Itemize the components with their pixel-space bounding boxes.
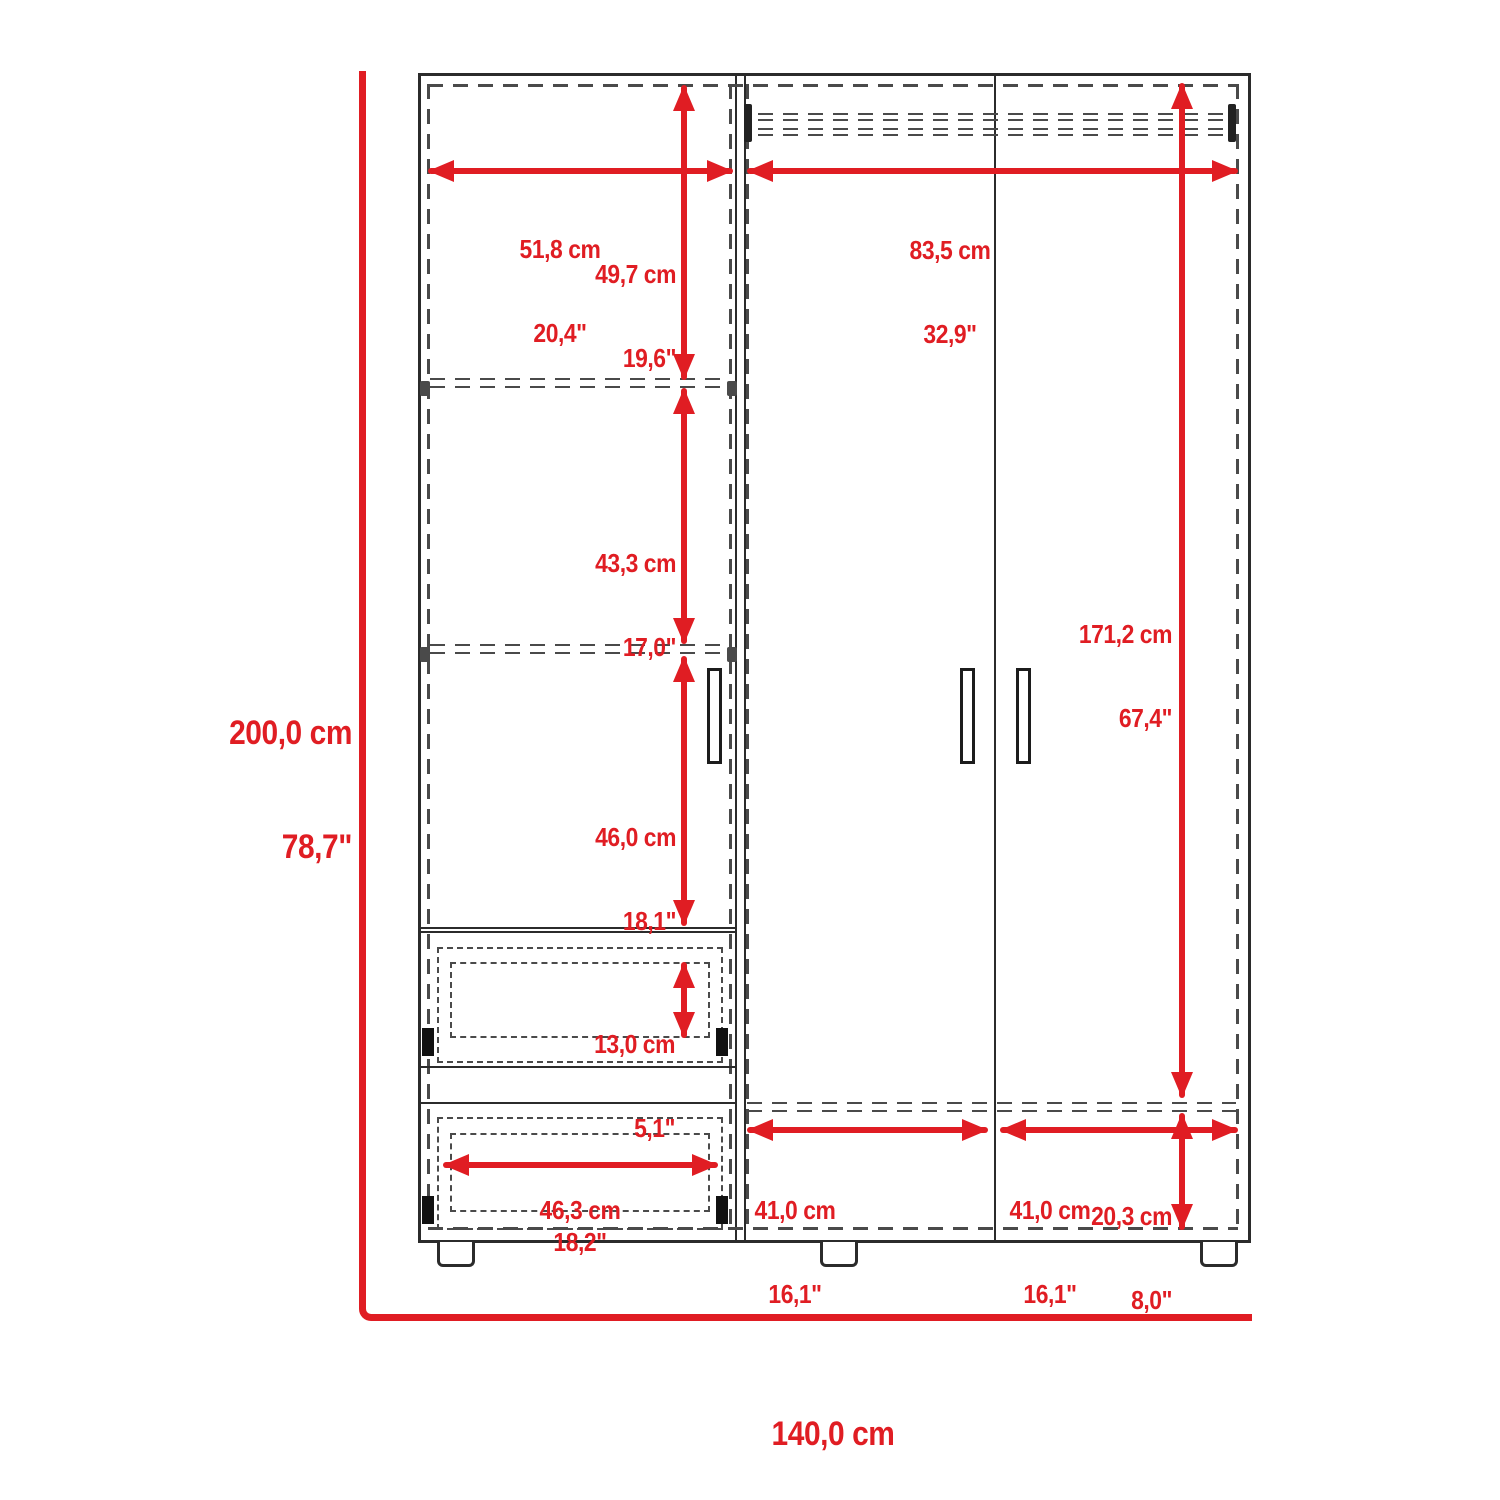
arrowhead	[673, 85, 695, 111]
arrowhead	[673, 354, 695, 380]
label-overall-width-cm: 140,0 cm	[701, 1415, 965, 1453]
dim-line-left-opening-width	[428, 168, 733, 174]
dim-line-right-door-width	[1000, 1127, 1238, 1133]
arrowhead	[1212, 1119, 1238, 1141]
label-cm: 20,3 cm	[1015, 1202, 1172, 1230]
arrowhead	[673, 900, 695, 926]
dim-line-hanging-area-height	[1179, 83, 1185, 1098]
arrowhead	[1171, 1113, 1193, 1139]
label-cm: 43,3 cm	[502, 549, 676, 577]
arrowhead	[428, 160, 454, 182]
label-in: 16,1"	[707, 1280, 883, 1308]
arrowhead	[673, 1012, 695, 1038]
label-base-shelf-height: 20,3 cm 8,0"	[1015, 1146, 1172, 1370]
arrowhead	[673, 388, 695, 414]
arrowhead	[1171, 1204, 1193, 1230]
label-cm: 171,2 cm	[996, 620, 1172, 648]
dim-line-left-door-width	[747, 1127, 988, 1133]
label-lower-left-height: 46,0 cm 18,1"	[502, 767, 676, 991]
label-in: 19,6"	[502, 344, 676, 372]
label-overall-height: 200,0 cm 78,7"	[165, 638, 352, 942]
label-middle-shelf-height: 43,3 cm 17,0"	[502, 493, 676, 717]
label-in: 8,0"	[1015, 1286, 1172, 1314]
dim-line-upper-left-height	[681, 85, 687, 380]
label-in: 18,2"	[492, 1228, 668, 1256]
arrowhead	[962, 1119, 988, 1141]
label-hanging-area-height: 171,2 cm 67,4"	[996, 564, 1172, 788]
label-in: 67,4"	[996, 704, 1172, 732]
label-upper-left-height: 49,7 cm 19,6"	[502, 204, 676, 428]
label-left-door-width: 41,0 cm 16,1"	[707, 1140, 883, 1364]
label-cm: 41,0 cm	[707, 1196, 883, 1224]
label-cm: 46,0 cm	[502, 823, 676, 851]
label-overall-height-cm: 200,0 cm	[165, 714, 352, 752]
dim-line-middle-shelf-height	[681, 388, 687, 644]
label-right-opening-width: 83,5 cm 32,9"	[862, 180, 1038, 404]
label-overall-height-in: 78,7"	[165, 828, 352, 866]
arrowhead	[673, 618, 695, 644]
label-in: 5,1"	[517, 1114, 675, 1142]
dim-line-right-opening-width	[747, 168, 1238, 174]
arrowhead	[747, 1119, 773, 1141]
label-drawer-width-in: 18,2"	[492, 1172, 668, 1312]
arrowhead	[747, 160, 773, 182]
arrowhead	[1171, 1072, 1193, 1098]
dim-line-lower-left-height	[681, 656, 687, 926]
arrowhead	[1171, 83, 1193, 109]
arrowhead	[1212, 160, 1238, 182]
label-cm: 49,7 cm	[502, 260, 676, 288]
label-cm: 13,0 cm	[517, 1030, 675, 1058]
arrowhead	[673, 656, 695, 682]
arrowhead	[1000, 1119, 1026, 1141]
arrowhead	[673, 962, 695, 988]
arrowhead	[707, 160, 733, 182]
label-in: 17,0"	[502, 633, 676, 661]
label-in: 32,9"	[862, 320, 1038, 348]
label-in: 18,1"	[502, 907, 676, 935]
wardrobe-dimension-diagram: 200,0 cm 78,7" 140,0 cm 55,1" 51,8 cm 20…	[0, 0, 1500, 1500]
label-cm: 83,5 cm	[862, 236, 1038, 264]
arrowhead	[443, 1154, 469, 1176]
